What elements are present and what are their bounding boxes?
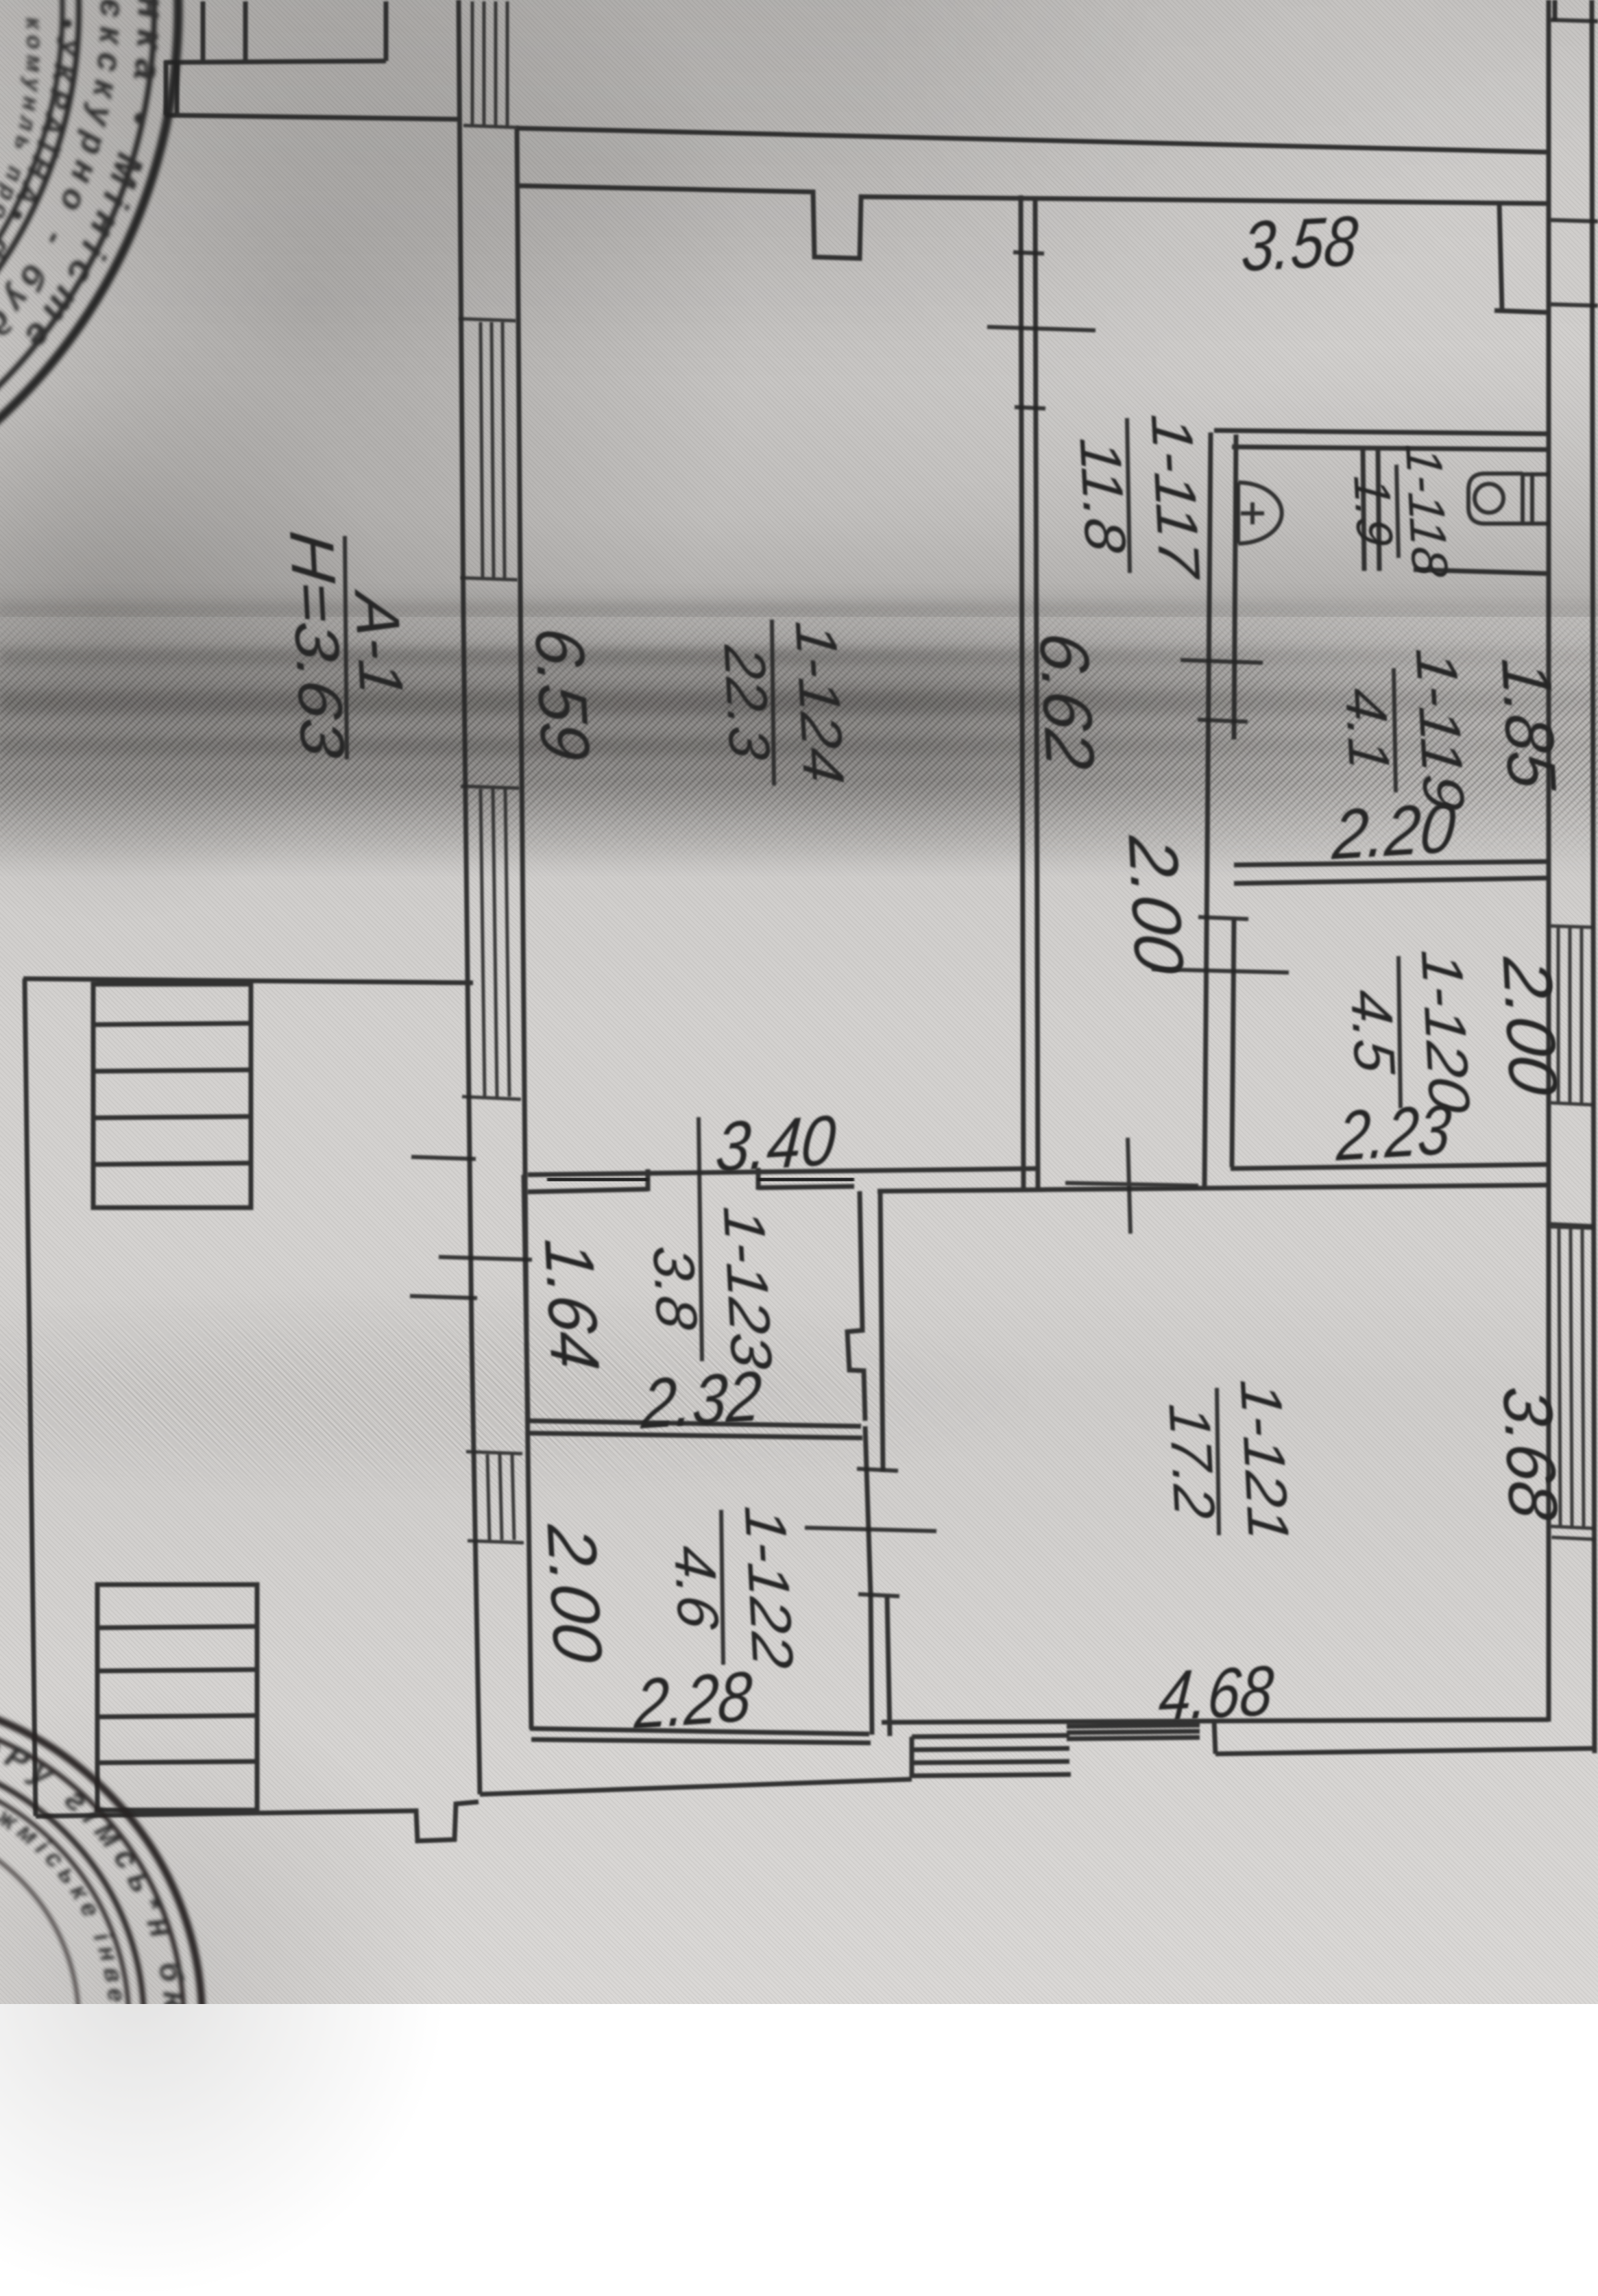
svg-text:4.1: 4.1 bbox=[1333, 686, 1402, 774]
svg-text:2.32: 2.32 bbox=[639, 1356, 764, 1443]
svg-text:4.68: 4.68 bbox=[1156, 1650, 1276, 1736]
svg-text:1-119: 1-119 bbox=[1404, 647, 1477, 814]
svg-text:3.40: 3.40 bbox=[713, 1100, 838, 1187]
svg-text:2.00: 2.00 bbox=[1488, 955, 1573, 1098]
svg-text:2.00: 2.00 bbox=[1114, 833, 1198, 977]
svg-text:17.2: 17.2 bbox=[1157, 1402, 1228, 1521]
svg-text:H=3.63: H=3.63 bbox=[276, 528, 357, 760]
svg-text:1.85: 1.85 bbox=[1487, 657, 1571, 793]
svg-text:3.8: 3.8 bbox=[641, 1244, 710, 1332]
svg-text:6.59: 6.59 bbox=[520, 625, 604, 764]
svg-text:1-118: 1-118 bbox=[1395, 443, 1459, 578]
svg-text:1.9: 1.9 bbox=[1343, 474, 1403, 548]
svg-text:2.00: 2.00 bbox=[533, 1522, 617, 1665]
svg-text:1-124: 1-124 bbox=[784, 620, 856, 786]
svg-text:22.3: 22.3 bbox=[712, 643, 782, 762]
svg-text:3.58: 3.58 bbox=[1239, 201, 1361, 286]
svg-text:3.68: 3.68 bbox=[1488, 1384, 1572, 1523]
svg-text:4.5: 4.5 bbox=[1339, 988, 1407, 1076]
svg-text:11.8: 11.8 bbox=[1068, 437, 1139, 555]
svg-text:1-120: 1-120 bbox=[1409, 949, 1482, 1115]
svg-text:1-117: 1-117 bbox=[1139, 413, 1213, 581]
svg-text:1-121: 1-121 bbox=[1228, 1378, 1301, 1545]
svg-text:1.64: 1.64 bbox=[530, 1237, 614, 1373]
svg-text:1-122: 1-122 bbox=[733, 1504, 806, 1671]
svg-text:2.28: 2.28 bbox=[632, 1656, 755, 1744]
svg-text:6.62: 6.62 bbox=[1025, 630, 1109, 772]
svg-text:4.6: 4.6 bbox=[662, 1543, 731, 1631]
svg-text:1-123: 1-123 bbox=[712, 1205, 784, 1371]
